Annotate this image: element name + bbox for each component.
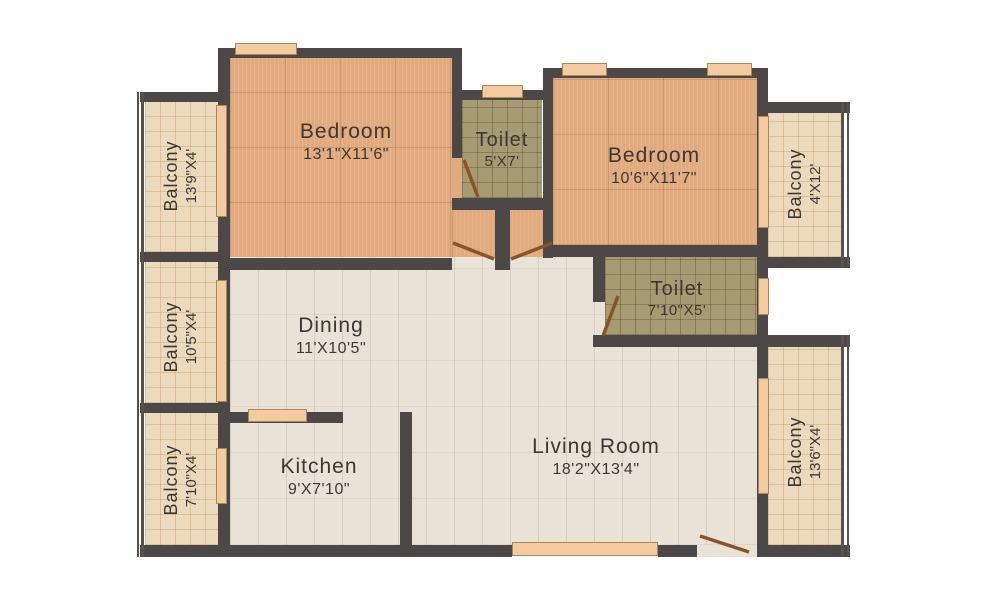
toilet2-label: Toilet 7'10"X5' [648, 277, 706, 321]
wall-balcony-left-top-cap [140, 92, 230, 102]
balcony-right-bottom-label: Balcony 13'6"X4' [785, 416, 825, 487]
kitchen-name: Kitchen [280, 454, 357, 480]
wall-kitchen-right [400, 412, 412, 557]
window-living-bottom [512, 542, 658, 556]
kitchen-dims: 9'X7'10" [280, 480, 357, 500]
wall-passage-stub [495, 210, 510, 270]
railing-right-top-inner [841, 102, 844, 268]
balcony-right-bottom-name: Balcony [785, 416, 807, 487]
wall-bedroom2-bottom [543, 245, 768, 257]
window-toilet2-right [758, 278, 769, 315]
balcony-left-mid-name: Balcony [161, 301, 183, 372]
railing-left-inner [141, 92, 144, 557]
dining-label: Dining 11'X10'5" [296, 313, 366, 359]
balcony-left-mid-dims: 10'5"X4' [183, 301, 201, 372]
living-room-name: Living Room [532, 434, 660, 460]
bedroom1-dims: 13'1"X11'6" [300, 145, 392, 165]
wall-bedroom1-toilet1-divider [452, 48, 462, 158]
window-bedroom2-top-2 [707, 63, 752, 76]
balcony-right-top-dims: 4'X12' [807, 148, 825, 219]
wall-bedroom2-left [543, 68, 553, 258]
wall-balcony-left-divider2 [140, 403, 230, 413]
window-living-balcony [758, 378, 769, 494]
toilet1-label: Toilet 5'X7' [476, 128, 529, 172]
balcony-left-bottom-label: Balcony 7'10"X4' [161, 444, 201, 515]
window-bedroom1-top [235, 43, 297, 55]
balcony-left-top-dims: 13'9"X4' [183, 140, 201, 211]
balcony-left-bottom-name: Balcony [161, 444, 183, 515]
window-kitchen-balcony [216, 448, 227, 504]
railing-left-outer [137, 92, 139, 557]
wall-balcony-right-top-base [757, 257, 850, 268]
toilet1-door-threshold [452, 158, 462, 198]
toilet2-name: Toilet [648, 277, 706, 302]
bedroom2-label: Bedroom 10'6"X11'7" [608, 143, 700, 189]
bedroom2-dims: 10'6"X11'7" [608, 169, 700, 189]
wall-dining-top [218, 258, 452, 270]
toilet1-name: Toilet [476, 128, 529, 153]
wall-balcony-right-top-cap [757, 102, 850, 113]
wall-balcony-right-bottom-base [757, 545, 850, 557]
bedroom2-name: Bedroom [608, 143, 700, 169]
railing-right-bottom-inner [841, 335, 844, 557]
balcony-left-mid-label: Balcony 10'5"X4' [161, 301, 201, 372]
balcony-left-bottom-dims: 7'10"X4' [183, 444, 201, 515]
living-room-label: Living Room 18'2"X13'4" [532, 434, 660, 480]
balcony-right-bottom-dims: 13'6"X4' [807, 416, 825, 487]
wall-bottom-left-segment [218, 545, 512, 557]
window-bedroom2-balcony [758, 116, 769, 228]
bedroom1-label: Bedroom 13'1"X11'6" [300, 119, 392, 165]
toilet2-dims: 7'10"X5' [648, 302, 706, 321]
wall-toilet2-bottom [593, 335, 768, 347]
bedroom1-name: Bedroom [300, 119, 392, 145]
wall-balcony-left-bottom-base [140, 545, 230, 557]
wall-bottom-mid-segment [658, 545, 697, 557]
window-dining-balcony [216, 280, 227, 402]
toilet1-dims: 5'X7' [476, 153, 529, 172]
balcony-right-top-label: Balcony 4'X12' [785, 148, 825, 219]
dining-name: Dining [296, 313, 366, 339]
balcony-left-top-label: Balcony 13'9"X4' [161, 140, 201, 211]
window-toilet1-top [482, 85, 523, 98]
railing-right-top-outer [847, 102, 849, 268]
wall-balcony-right-bottom-cap [757, 335, 850, 347]
kitchen-label: Kitchen 9'X7'10" [280, 454, 357, 500]
wall-toilet1-bottom [452, 198, 553, 210]
window-bedroom1-balcony [216, 105, 227, 217]
railing-right-bottom-outer [847, 335, 849, 557]
floor-plan: Bedroom 13'1"X11'6" Toilet 5'X7' Bedroom… [0, 0, 1000, 600]
window-bedroom2-top-1 [562, 63, 607, 76]
living-room-dims: 18'2"X13'4" [532, 460, 660, 480]
dining-dims: 11'X10'5" [296, 339, 366, 359]
balcony-right-top-name: Balcony [785, 148, 807, 219]
wall-toilet2-left [593, 257, 605, 302]
balcony-left-top-name: Balcony [161, 140, 183, 211]
wall-balcony-left-divider1 [140, 252, 230, 262]
entrance-threshold [697, 545, 757, 557]
window-kitchen-service [248, 409, 307, 422]
